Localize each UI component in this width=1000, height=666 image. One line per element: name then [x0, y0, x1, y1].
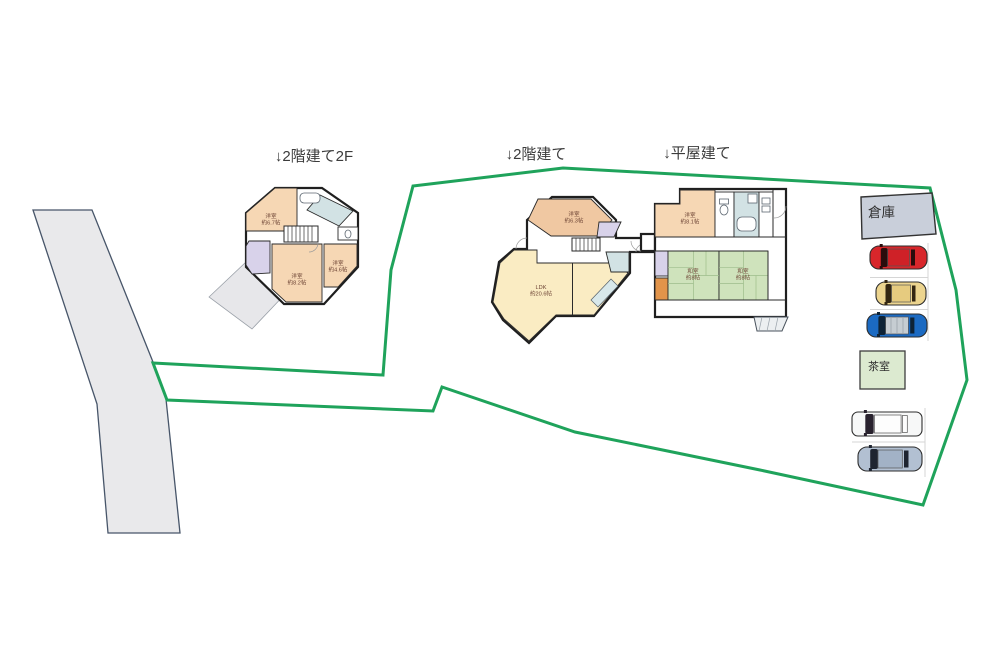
room-size-label: 約6.7帖: [262, 219, 281, 227]
entry-bump: [641, 234, 655, 251]
sink-icon: [748, 194, 757, 203]
warehouse: 倉庫: [861, 193, 936, 239]
stove-icon: [762, 206, 770, 212]
room-size-label: 約8.2帖: [288, 279, 307, 287]
toilet-icon: [720, 199, 729, 215]
toilet-icon: [345, 230, 351, 238]
room-closet-purple: [655, 251, 668, 276]
room-size-label: 約20.6帖: [530, 290, 552, 298]
stairs-icon: [284, 226, 318, 242]
room-label: 洋室: [265, 212, 277, 220]
room-size-label: 約8.1帖: [681, 218, 700, 226]
site-plan: 洋室 約6.7帖 洋室 約8.2帖 洋室 約4.6帖 洋室 約6.3帖 LDK …: [0, 0, 1000, 666]
room-closet-purple: [246, 241, 270, 274]
room-label: 洋室: [684, 211, 696, 219]
tearoom: 茶室: [860, 351, 905, 389]
red-car: [870, 244, 927, 269]
stairs-icon: [572, 238, 600, 251]
yellow-car: [876, 280, 926, 305]
room-size-label: 約4.6帖: [329, 266, 348, 274]
gray-car: [858, 445, 922, 471]
building2-title: ↓2階建て: [506, 146, 567, 163]
white-van: [852, 410, 922, 436]
room-size-label: 約8帖: [736, 274, 751, 282]
room-label: 洋室: [568, 210, 580, 218]
tearoom-label: 茶室: [868, 359, 890, 373]
background: [0, 0, 1000, 666]
warehouse-label: 倉庫: [868, 205, 895, 220]
room-label: 洋室: [332, 259, 344, 267]
room-label: 和室: [737, 267, 749, 275]
building3-plan: 洋室 約8.1帖 和室 約8帖 和室 約8帖: [631, 189, 788, 331]
site-plan-svg: 洋室 約6.7帖 洋室 約8.2帖 洋室 約4.6帖 洋室 約6.3帖 LDK …: [0, 0, 1000, 666]
blue-car: [867, 312, 927, 337]
room-label: 和室: [687, 267, 699, 275]
room-size-label: 約6.3帖: [565, 217, 584, 225]
room-label: 洋室: [291, 272, 303, 280]
entry-step: [754, 317, 788, 331]
bathtub-icon: [300, 193, 320, 203]
room-closet-orange: [655, 278, 668, 300]
room-youshitsu-8-2: [272, 244, 322, 302]
room-size-label: 約8帖: [686, 274, 701, 282]
building1-title: ↓2階建て2F: [275, 148, 353, 165]
room-label: LDK: [536, 285, 547, 291]
building3-title: ↓平屋建て: [663, 145, 731, 162]
bathtub-icon: [737, 217, 756, 231]
stove-icon: [762, 198, 770, 204]
